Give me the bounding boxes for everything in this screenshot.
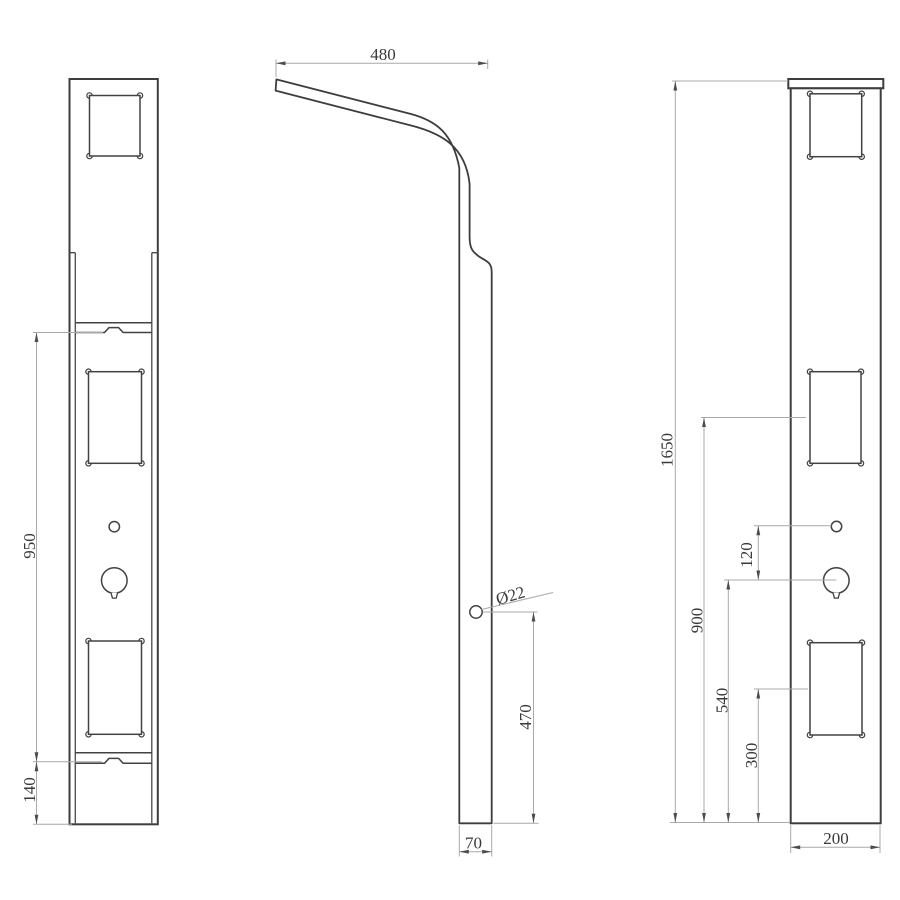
technical-drawing: 950 140 480 Ø22 470 70 1650 900 120 <box>0 0 900 900</box>
back-cutout-bottom-rect <box>810 643 862 735</box>
back-view <box>788 79 883 823</box>
dim-470-label: 470 <box>516 704 535 730</box>
back-cutout-middle <box>807 369 863 466</box>
front-cutout-bottom-rect <box>89 641 142 734</box>
side-hole-dia22 <box>470 606 482 618</box>
dim-950-label: 950 <box>20 533 39 559</box>
dim-540-label: 540 <box>712 688 731 714</box>
dim-300-label: 300 <box>742 743 761 769</box>
dim-dia22-label: Ø22 <box>494 583 527 609</box>
front-cutout-middle-rect <box>89 372 142 464</box>
dim-70-label: 70 <box>465 834 482 853</box>
back-hole-large-notch <box>833 593 840 598</box>
side-profile-outline <box>276 79 492 823</box>
front-hole-small <box>109 522 119 532</box>
front-cutout-middle <box>86 369 144 466</box>
dim-70: 70 <box>459 825 491 856</box>
dim-480: 480 <box>276 45 488 77</box>
front-cutout-top-rect <box>90 96 141 157</box>
back-hole-small <box>831 521 841 531</box>
front-hole-large <box>102 568 128 594</box>
dim-200: 200 <box>791 825 880 853</box>
front-view <box>70 79 158 824</box>
back-cutout-middle-rect <box>810 372 861 464</box>
dim-140-label: 140 <box>20 777 39 803</box>
back-top-cap <box>788 79 883 88</box>
back-cutout-top-rect <box>810 94 862 157</box>
side-view <box>276 79 492 823</box>
dim-200-label: 200 <box>823 829 849 848</box>
dim-480-label: 480 <box>370 45 396 64</box>
front-cutout-bottom <box>86 638 144 737</box>
back-cutout-bottom <box>807 640 864 738</box>
dim-1650-label: 1650 <box>658 433 677 467</box>
back-cutout-top <box>807 91 864 159</box>
front-hole-large-notch <box>111 593 118 598</box>
dim-900-label: 900 <box>688 608 707 634</box>
front-cutout-top <box>87 93 143 159</box>
dim-120-label: 120 <box>737 542 756 568</box>
